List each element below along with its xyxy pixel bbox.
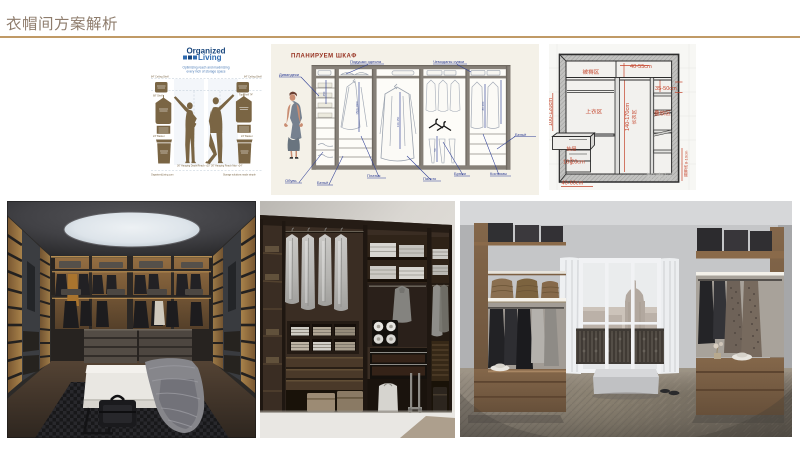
svg-text:68" Shelf: 68" Shelf	[153, 95, 163, 98]
svg-text:every inch of storage space: every inch of storage space	[187, 70, 226, 74]
svg-text:84" Ceiling Shelf: 84" Ceiling Shelf	[151, 76, 169, 79]
svg-text:Обувь: Обувь	[285, 178, 297, 183]
svg-text:Чемоданы сумки: Чемоданы сумки	[433, 59, 464, 64]
svg-text:100-120cm: 100-120cm	[549, 98, 554, 126]
svg-text:Подушки одеяла: Подушки одеяла	[350, 59, 382, 64]
svg-text:Бельё: Бельё	[317, 180, 329, 185]
svg-text:OrganizedLiving.com: OrganizedLiving.com	[151, 174, 173, 177]
svg-text:Брюки: Брюки	[454, 171, 466, 176]
svg-text:130-150: 130-150	[396, 116, 400, 127]
svg-text:Living: Living	[198, 53, 222, 62]
svg-text:80-100: 80-100	[481, 101, 485, 110]
svg-text:1500-1600: 1500-1600	[355, 101, 359, 115]
svg-text:ПЛАНИРУЕМ ШКАФ: ПЛАНИРУЕМ ШКАФ	[291, 54, 357, 60]
svg-text:Top Shelf 74": Top Shelf 74"	[239, 94, 253, 97]
svg-text:36" Hanging Depth/Reach +20": 36" Hanging Depth/Reach +20"	[177, 165, 210, 168]
svg-text:84" Ceiling Shelf: 84" Ceiling Shelf	[244, 76, 262, 79]
svg-text:24" Basket: 24" Basket	[241, 135, 253, 138]
svg-text:36" Hanging Reach Max +24": 36" Hanging Reach Max +24"	[211, 165, 243, 168]
svg-text:24" Basket: 24" Basket	[153, 135, 165, 138]
svg-text:Storage solutions made simple: Storage solutions made simple	[223, 174, 256, 177]
svg-text:40-60cm: 40-60cm	[562, 181, 584, 187]
svg-text:8-10cm: 8-10cm	[683, 150, 688, 164]
svg-text:Пальто: Пальто	[423, 176, 437, 181]
svg-text:50: 50	[433, 148, 437, 152]
svg-text:Дивандеки: Дивандеки	[279, 72, 299, 77]
svg-text:140-170cm: 140-170cm	[625, 103, 631, 131]
svg-text:40-55cm: 40-55cm	[630, 64, 652, 70]
svg-text:35-50cm: 35-50cm	[655, 86, 677, 92]
svg-text:450: 450	[322, 91, 326, 96]
svg-text:16-20cm: 16-20cm	[563, 160, 585, 166]
